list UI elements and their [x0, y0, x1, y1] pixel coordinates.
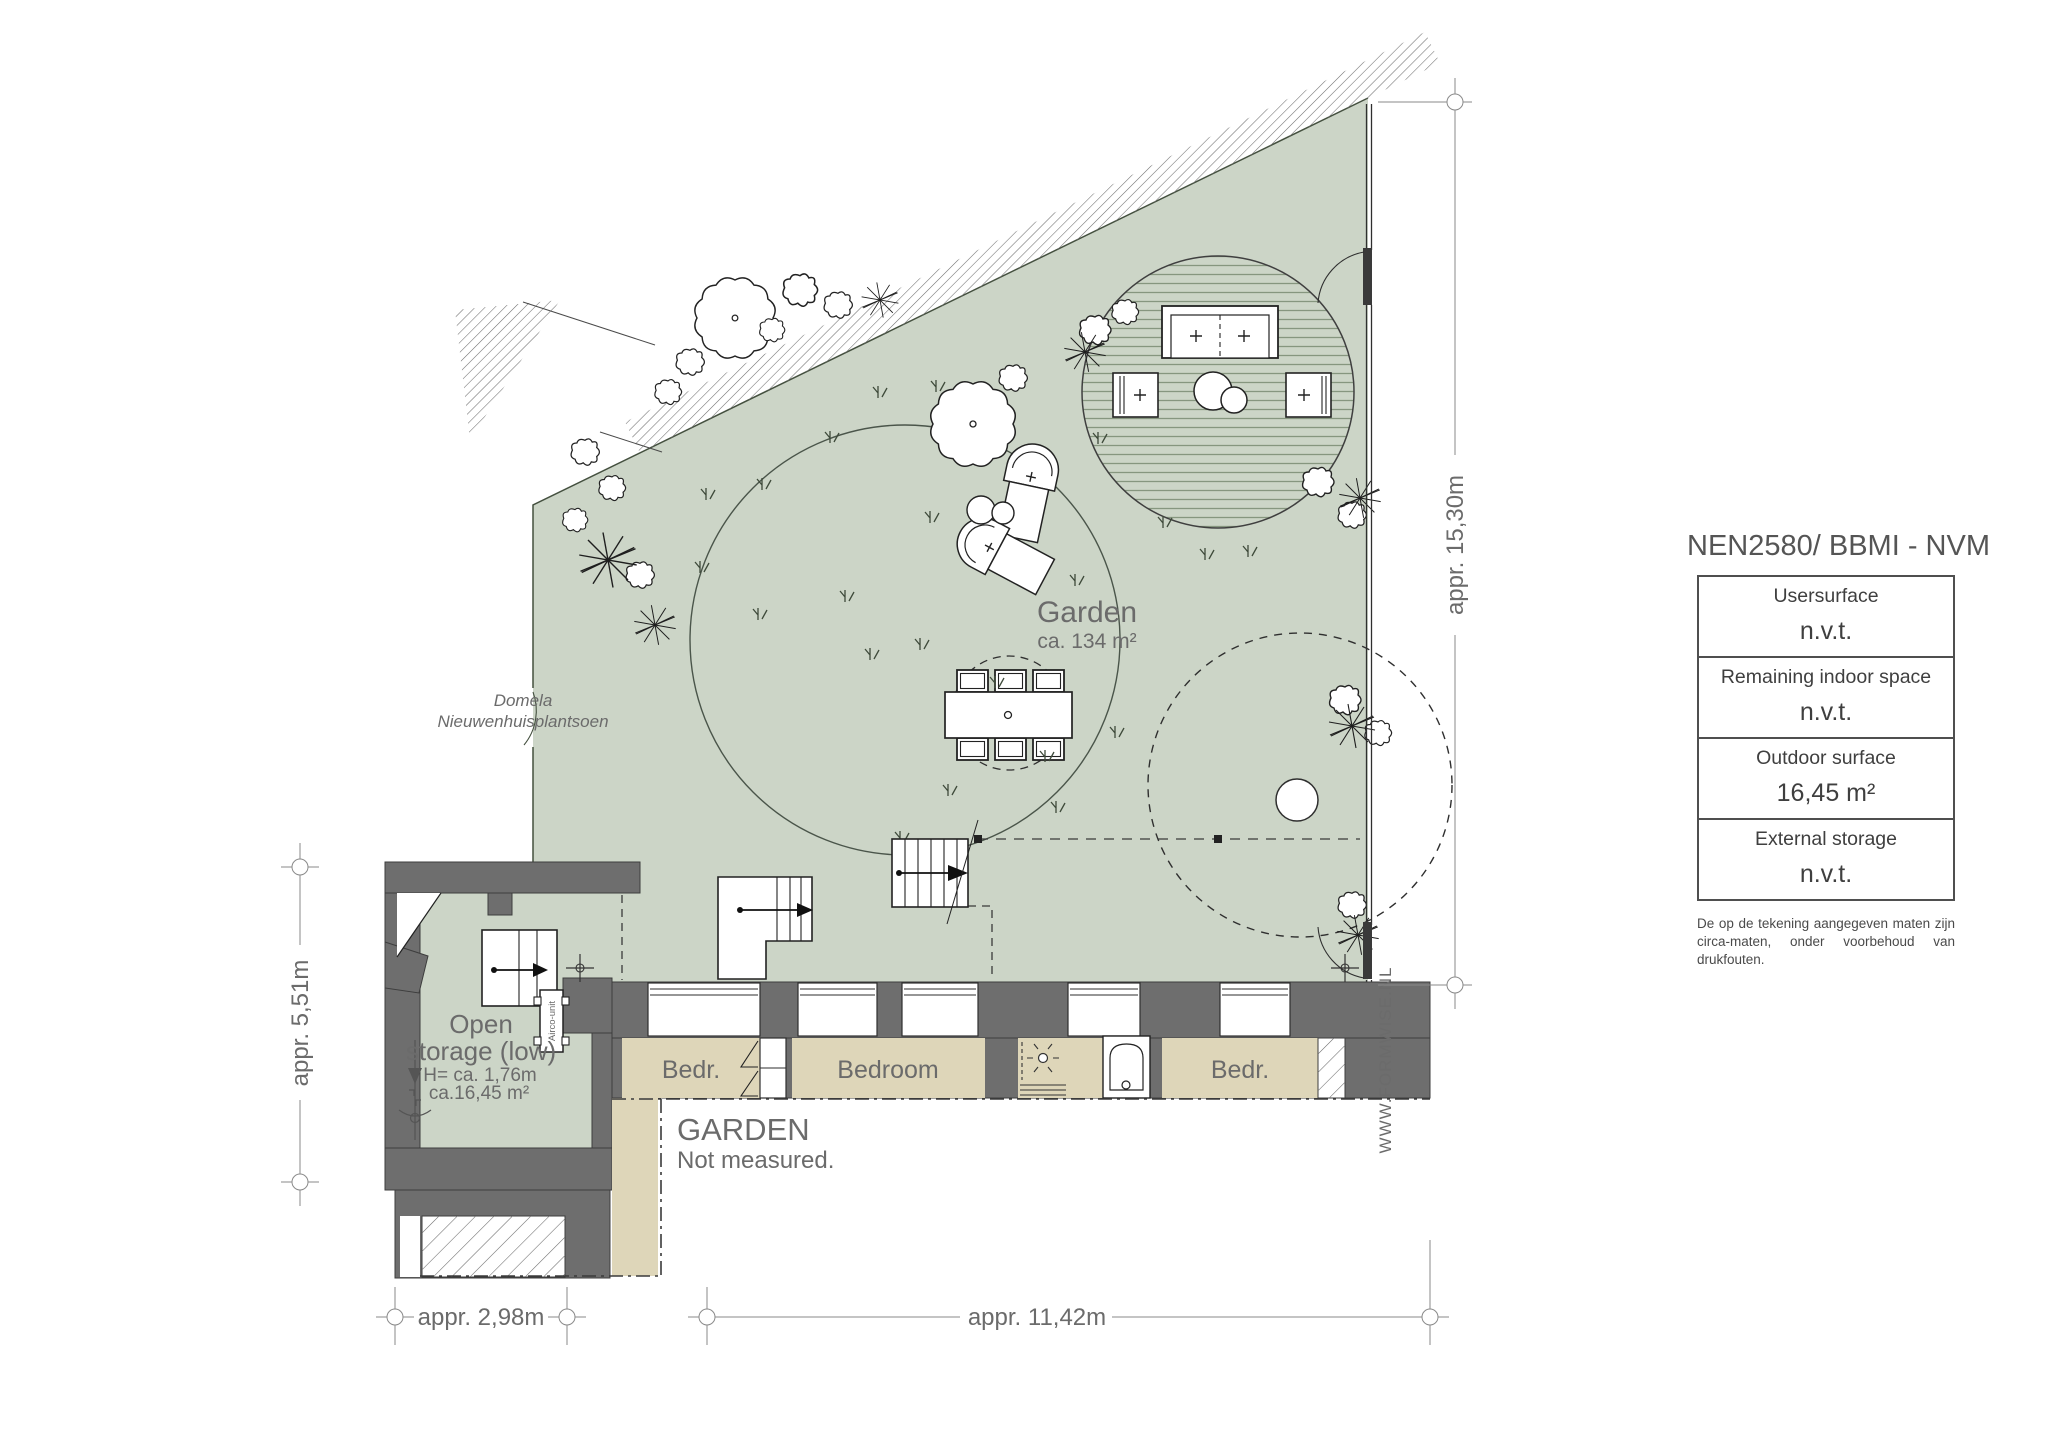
tree-trunk [1276, 779, 1318, 821]
row-value: n.v.t. [1699, 860, 1953, 889]
duct-hatch [1318, 1038, 1345, 1098]
storage-label-line2: storage (low) [406, 1036, 556, 1066]
hatch-wedge [455, 300, 560, 440]
disclaimer-text: De op de tekening aangegeven maten zijn … [1697, 915, 1955, 970]
title-block-heading: NEN2580/ BBMI - NVM [1687, 530, 1965, 563]
room-label-bedr-right: Bedr. [1211, 1056, 1269, 1084]
armchair-right [1286, 373, 1331, 417]
dimension-bottom-left: appr. 2,98m [376, 1287, 586, 1345]
gate-leaf-top [1363, 248, 1372, 305]
row-label: External storage [1699, 828, 1953, 851]
row-label: Outdoor surface [1699, 747, 1953, 770]
watermark: WWW.FORMWISE.NL [1376, 967, 1395, 1154]
window [648, 983, 760, 1036]
window [798, 983, 877, 1036]
garden-label: Garden [1037, 596, 1137, 629]
room-label-bedroom: Bedroom [837, 1056, 938, 1084]
bathroom-floor [1018, 1038, 1103, 1098]
park-name-line2: Nieuwenhuisplantsoen [437, 712, 608, 731]
row-value: n.v.t. [1699, 617, 1953, 646]
table-row: Outdoor surface 16,45 m² [1699, 739, 1953, 820]
dining-set [945, 670, 1072, 760]
garden-area-label: ca. 134 m² [1037, 630, 1136, 653]
armchair-left [1113, 373, 1158, 417]
side-path-floor [612, 1098, 658, 1276]
bathtub [1103, 1036, 1150, 1098]
row-value: 16,45 m² [1699, 779, 1953, 808]
storage-area-label: ca.16,45 m² [429, 1083, 529, 1104]
dim-left-label: appr. 5,51m [287, 960, 314, 1087]
row-label: Remaining indoor space [1699, 666, 1953, 689]
nen2580-title-block: NEN2580/ BBMI - NVM Usersurface n.v.t. R… [1697, 530, 1955, 970]
round-tree-icon [931, 382, 1016, 467]
room-label-bedr-left: Bedr. [662, 1056, 720, 1084]
neighbor-hatch [400, 1216, 565, 1277]
surface-table: Usersurface n.v.t. Remaining indoor spac… [1697, 575, 1955, 901]
row-value: n.v.t. [1699, 698, 1953, 727]
deck-side-table [1221, 387, 1247, 413]
row-label: Usersurface [1699, 585, 1953, 608]
garden-south-title: GARDEN [677, 1112, 810, 1147]
window [902, 983, 978, 1036]
sofa [1162, 306, 1278, 358]
storage-label-line1: Open [449, 1009, 513, 1039]
table-row: Usersurface n.v.t. [1699, 577, 1953, 658]
dim-bottom-left-label: appr. 2,98m [418, 1304, 545, 1331]
dining-table [945, 692, 1072, 738]
airco-label: Airco-unit [547, 1001, 558, 1041]
dimension-left: appr. 5,51m [281, 843, 319, 1206]
dimension-right: appr. 15,30m [1378, 78, 1472, 1009]
window [1068, 983, 1140, 1036]
dim-bottom-center-label: appr. 11,42m [968, 1304, 1106, 1331]
dim-right-label: appr. 15,30m [1442, 475, 1469, 615]
table-row: External storage n.v.t. [1699, 820, 1953, 899]
round-tree-icon [695, 278, 775, 358]
park-name-line1: Domela [494, 691, 553, 710]
window [1220, 983, 1290, 1036]
garden-south-subtitle: Not measured. [677, 1147, 834, 1174]
table-row: Remaining indoor space n.v.t. [1699, 658, 1953, 739]
dimension-bottom-center: appr. 11,42m [688, 1240, 1449, 1345]
gate-leaf-bottom [1363, 922, 1372, 979]
floorplan-page: Airco-unit Garden ca. 134 m² Domela Nieu… [0, 0, 2048, 1448]
